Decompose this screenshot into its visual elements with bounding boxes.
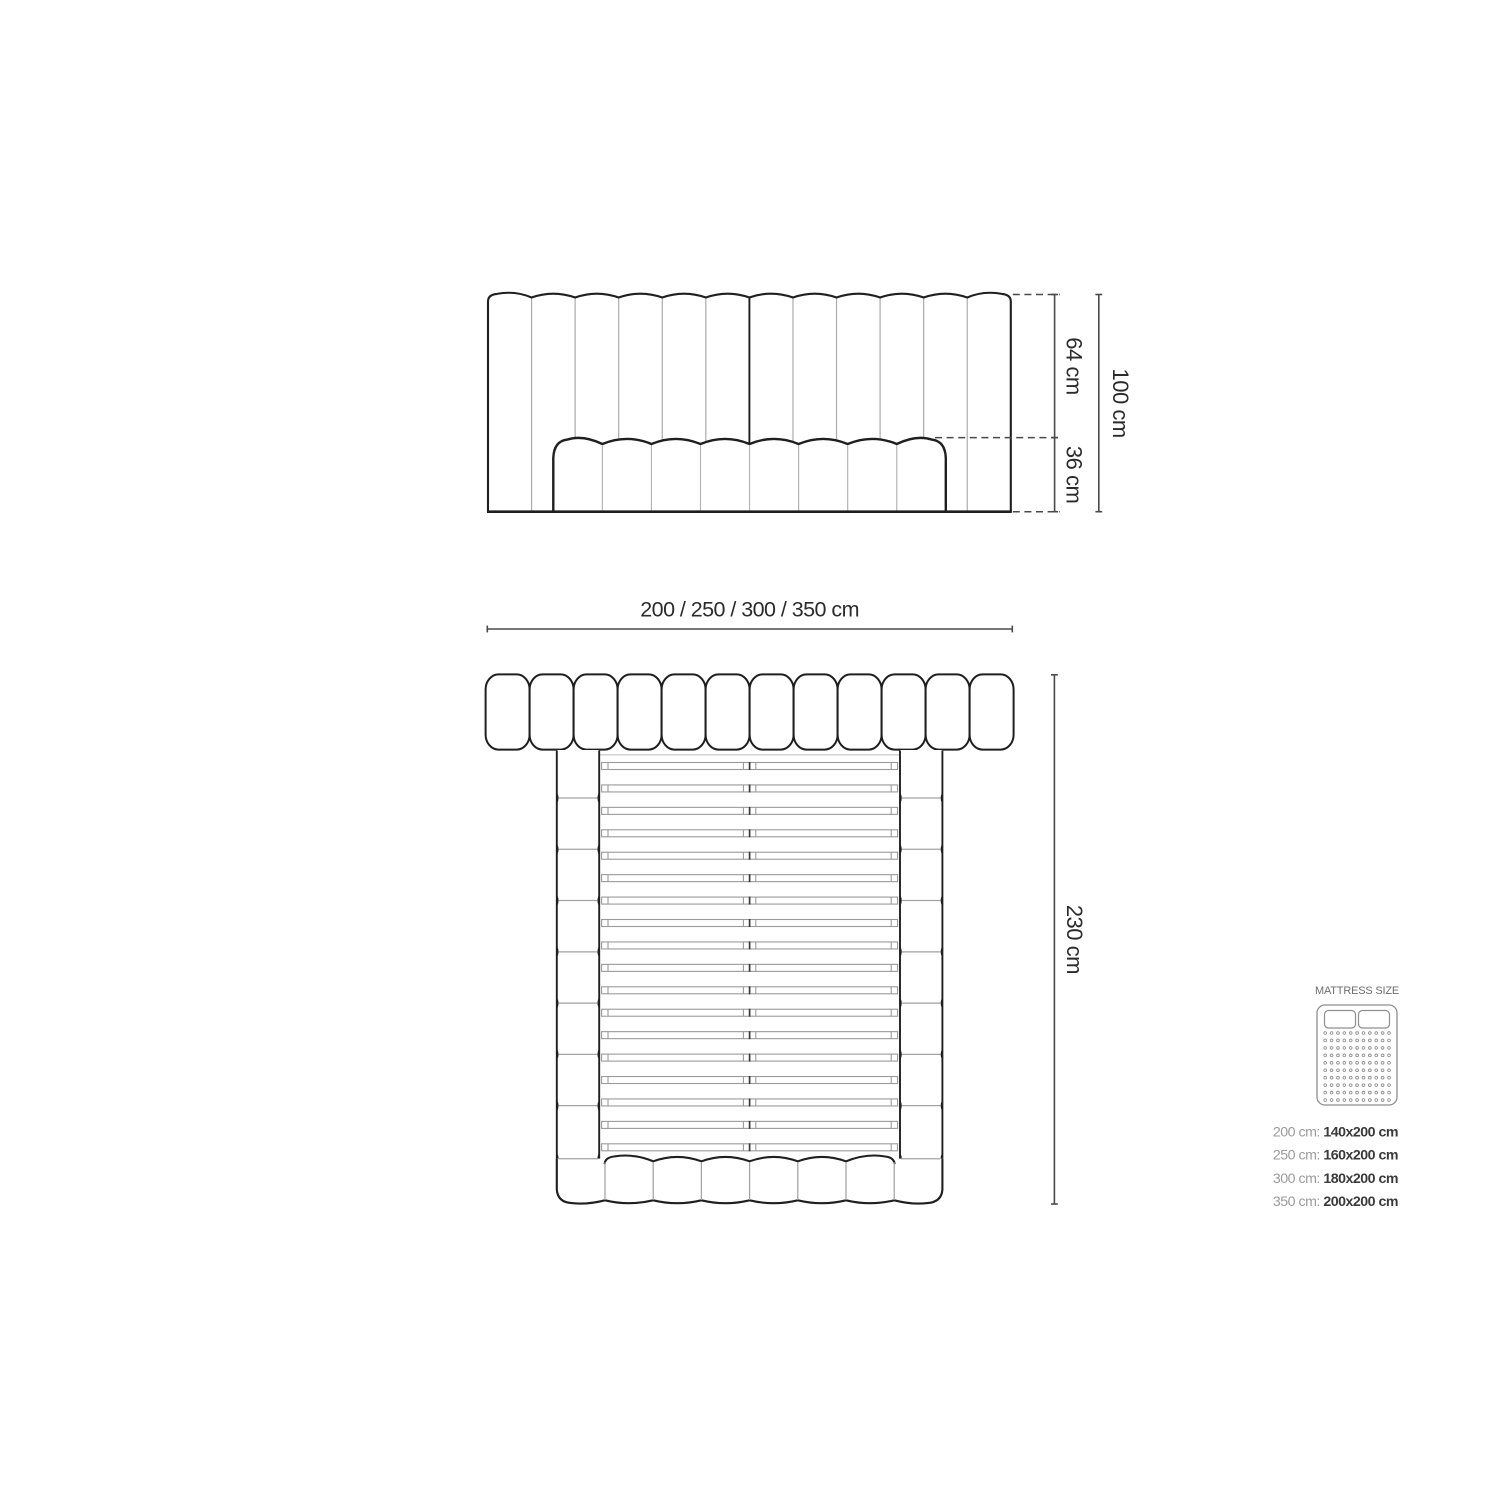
svg-text:300 cm: 180x200 cm: 300 cm: 180x200 cm [1273, 1171, 1398, 1187]
svg-text:250 cm: 160x200 cm: 250 cm: 160x200 cm [1273, 1148, 1398, 1164]
svg-text:64 cm: 64 cm [1061, 337, 1086, 394]
svg-text:100 cm: 100 cm [1108, 369, 1133, 438]
svg-text:200 / 250 / 300 / 350 cm: 200 / 250 / 300 / 350 cm [640, 598, 859, 622]
svg-text:200 cm: 140x200 cm: 200 cm: 140x200 cm [1273, 1124, 1398, 1140]
svg-text:36 cm: 36 cm [1061, 446, 1086, 503]
svg-text:230 cm: 230 cm [1062, 905, 1087, 974]
svg-text:MATTRESS SIZE: MATTRESS SIZE [1315, 985, 1399, 997]
svg-text:350 cm: 200x200 cm: 350 cm: 200x200 cm [1273, 1194, 1398, 1210]
